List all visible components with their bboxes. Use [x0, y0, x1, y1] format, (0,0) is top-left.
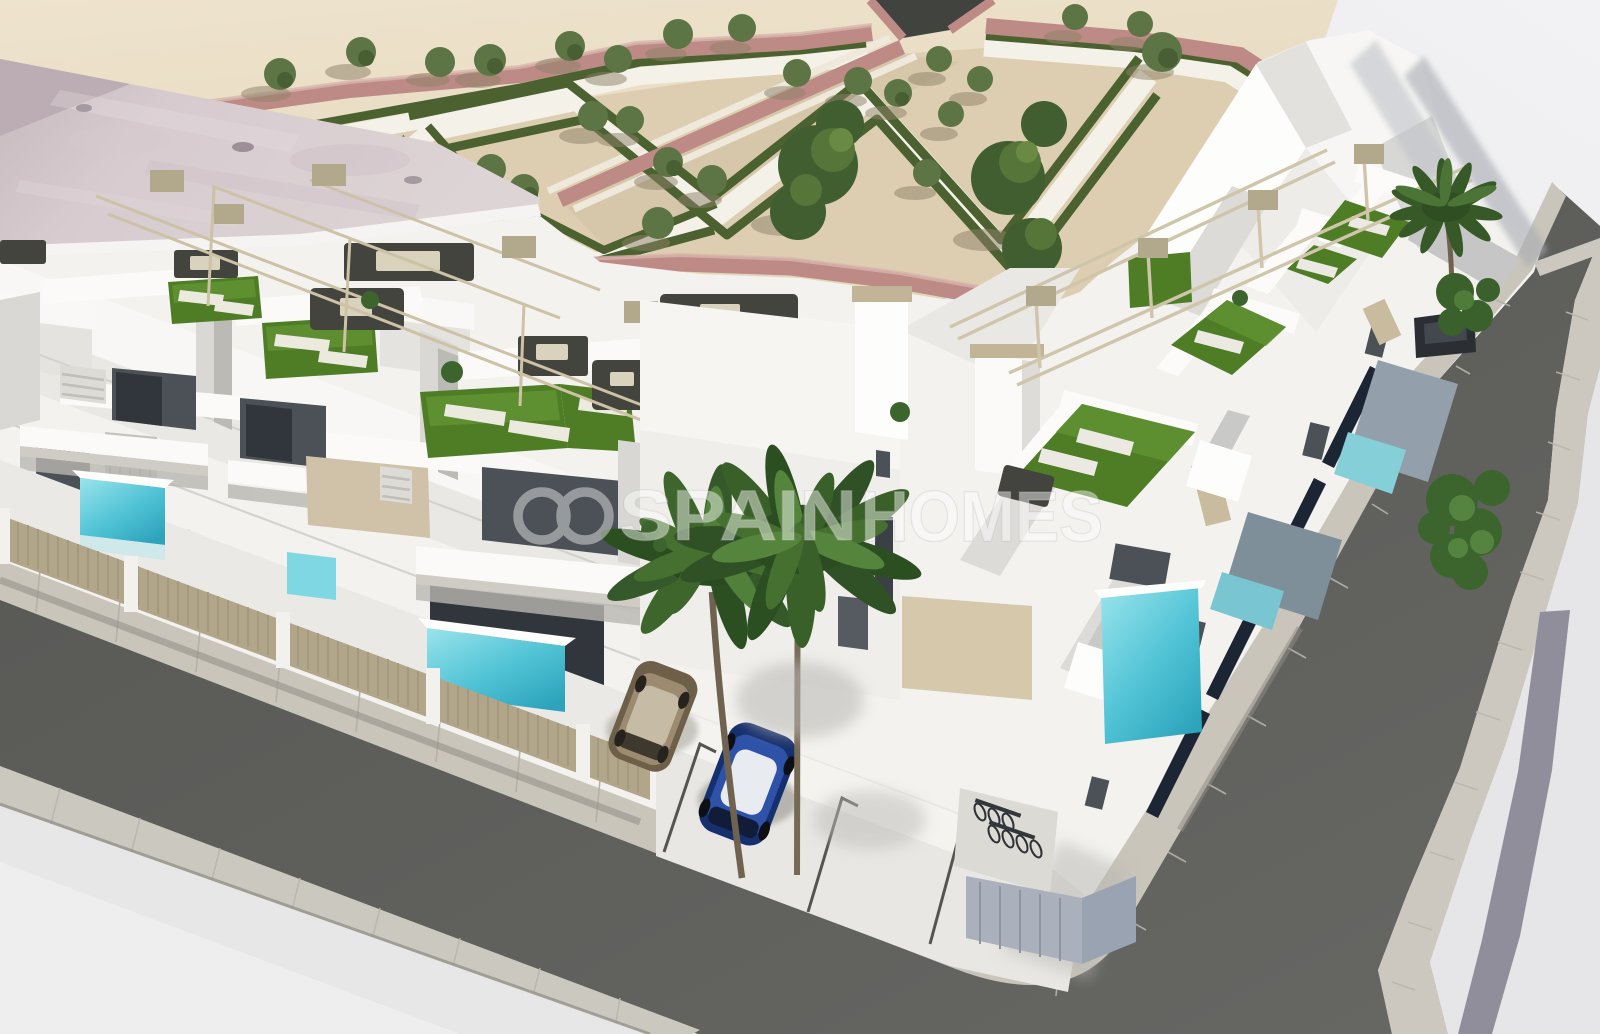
svg-text:HOMES: HOMES — [861, 478, 1103, 557]
svg-text:SPAIN: SPAIN — [619, 477, 857, 556]
